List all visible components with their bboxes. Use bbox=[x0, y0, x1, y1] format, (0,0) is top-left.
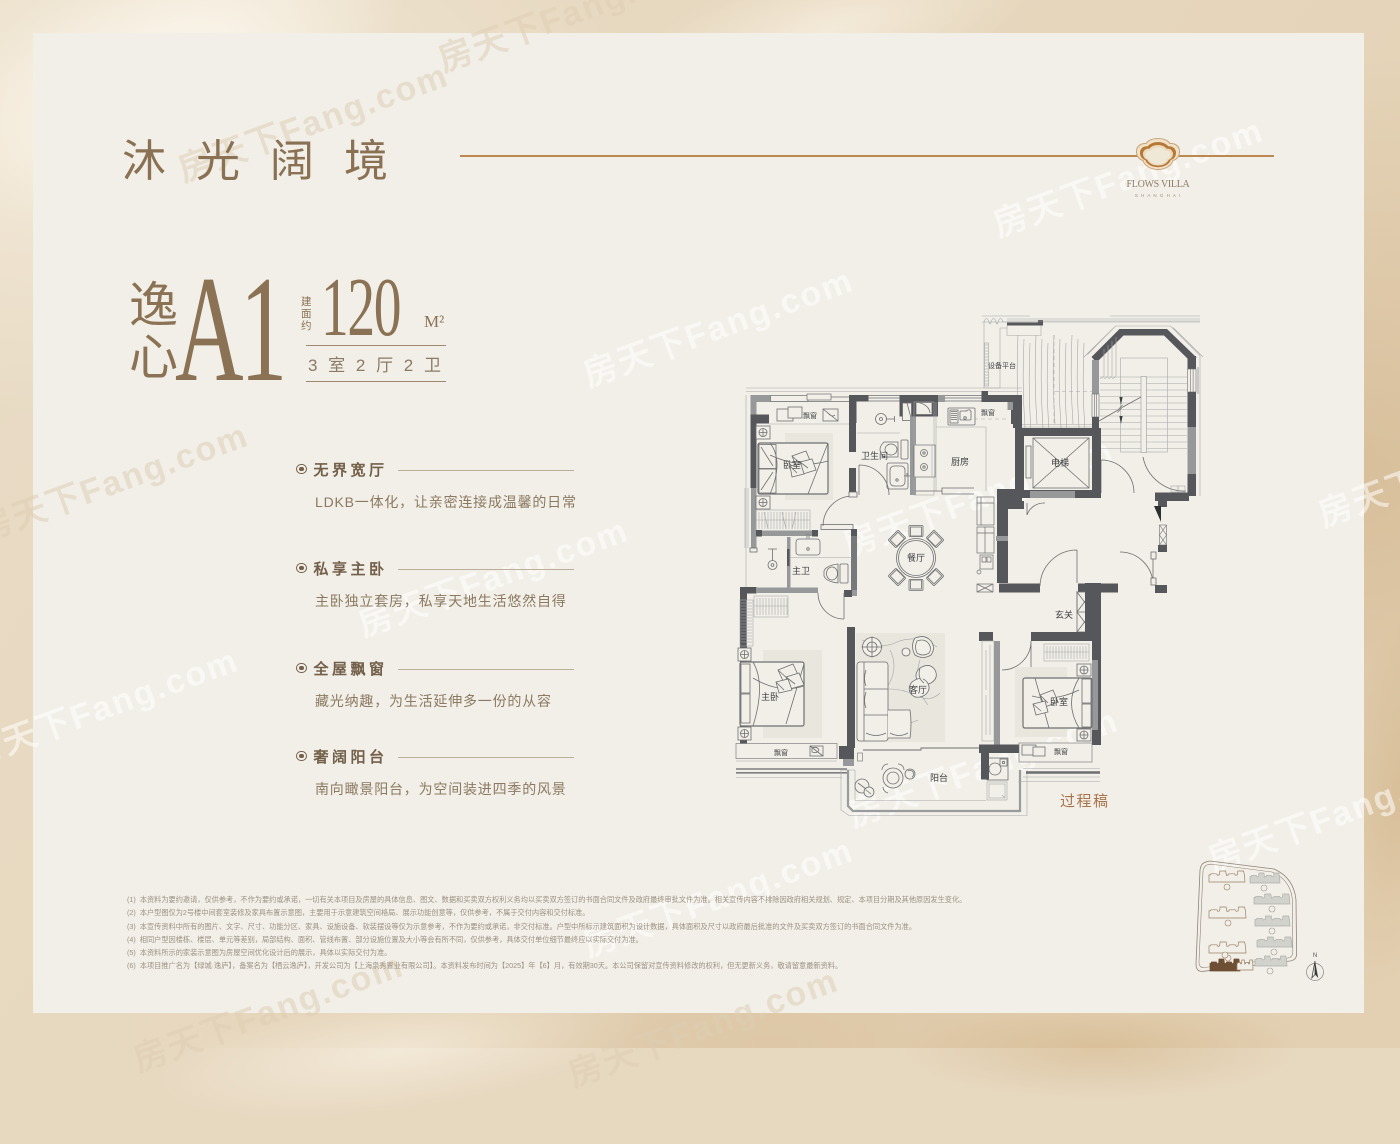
svg-text:餐厅: 餐厅 bbox=[907, 552, 925, 563]
svg-text:卫生间: 卫生间 bbox=[861, 450, 888, 461]
svg-text:飘窗: 飘窗 bbox=[1054, 747, 1068, 756]
svg-text:阳台: 阳台 bbox=[930, 772, 948, 783]
svg-text:厨房: 厨房 bbox=[951, 456, 969, 467]
svg-text:飘窗: 飘窗 bbox=[774, 748, 788, 757]
svg-text:飘窗: 飘窗 bbox=[981, 408, 995, 417]
svg-text:客厅: 客厅 bbox=[909, 684, 927, 695]
svg-text:设备平台: 设备平台 bbox=[988, 361, 1016, 370]
svg-text:飘窗: 飘窗 bbox=[803, 411, 817, 420]
svg-text:卧室: 卧室 bbox=[1050, 696, 1068, 707]
svg-text:电梯: 电梯 bbox=[1051, 457, 1069, 468]
svg-text:卧室: 卧室 bbox=[783, 459, 801, 470]
svg-text:主卫: 主卫 bbox=[792, 565, 810, 576]
svg-text:主卧: 主卧 bbox=[761, 691, 779, 702]
svg-text:N: N bbox=[1313, 953, 1317, 959]
svg-text:玄关: 玄关 bbox=[1055, 609, 1073, 620]
